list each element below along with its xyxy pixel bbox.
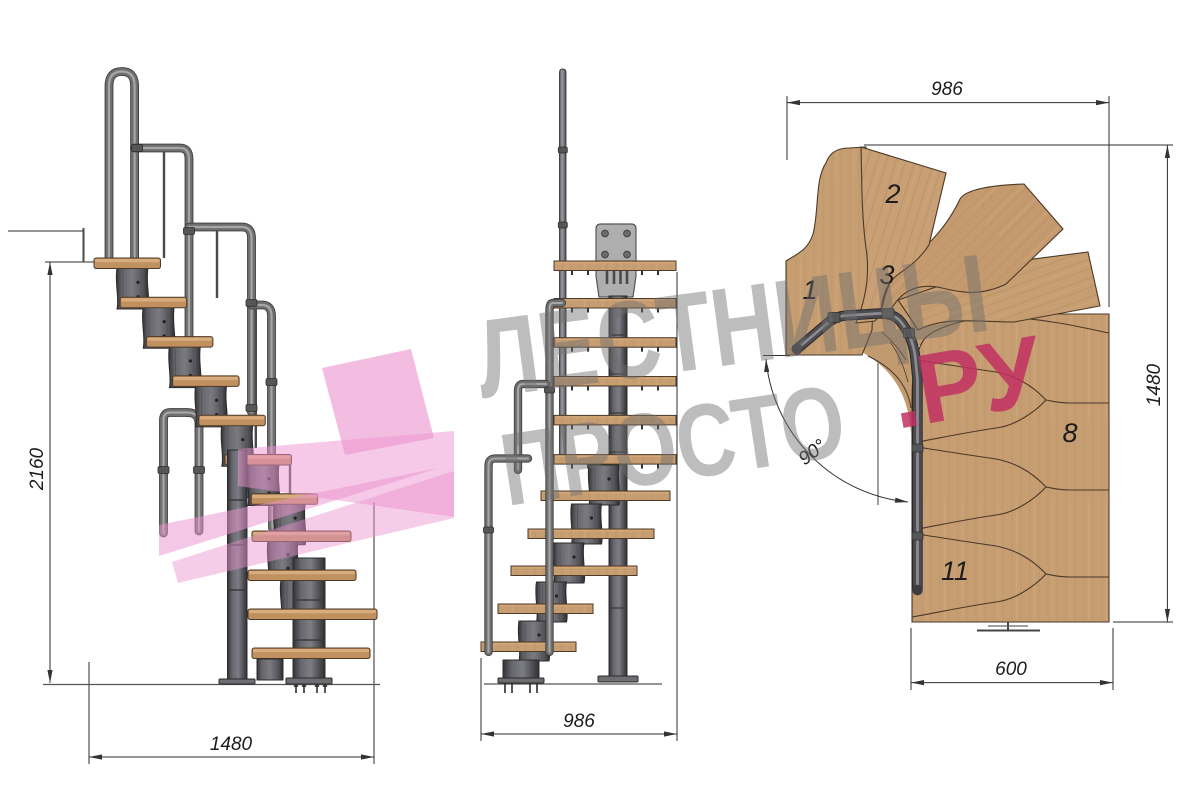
svg-text:1480: 1480 bbox=[1144, 363, 1165, 406]
svg-text:2160: 2160 bbox=[27, 447, 48, 491]
svg-text:986: 986 bbox=[563, 711, 595, 732]
svg-text:986: 986 bbox=[931, 79, 963, 100]
svg-text:2: 2 bbox=[884, 179, 900, 209]
svg-text:8: 8 bbox=[1062, 418, 1077, 448]
svg-text:600: 600 bbox=[995, 659, 1027, 680]
svg-text:11: 11 bbox=[941, 556, 969, 586]
svg-text:1480: 1480 bbox=[210, 734, 253, 755]
